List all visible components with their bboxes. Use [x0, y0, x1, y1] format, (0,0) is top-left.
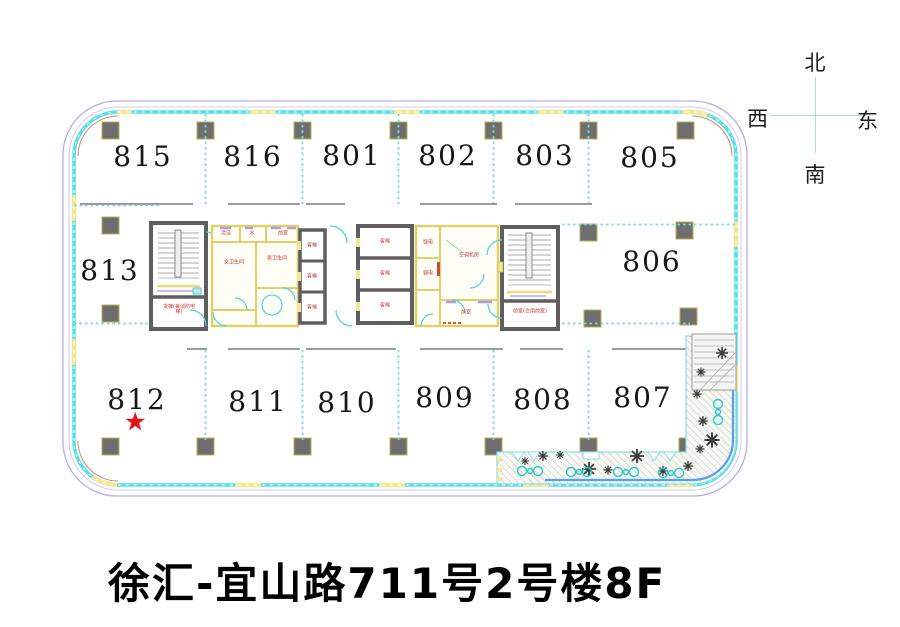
- star-marker: ★: [124, 409, 146, 434]
- label-passenger-elevator: 客梯: [380, 272, 390, 277]
- terrace-corner-stair: [692, 334, 736, 390]
- label-strong-power: 强电: [423, 241, 433, 246]
- room-label-813: 813: [62, 257, 158, 285]
- label-passenger-elevator: 客梯: [307, 244, 317, 249]
- label-men-toilet: 男卫生间: [267, 257, 287, 262]
- lobby-doors: [330, 226, 352, 326]
- compass-west-label: 西: [747, 103, 768, 133]
- floor-plan-canvas: 815 816 801 802 803 805 813 806 812 811 …: [0, 0, 900, 627]
- room-label-816: 816: [205, 143, 301, 171]
- label-passenger-elevator: 客梯: [307, 275, 317, 280]
- core-toilets: [212, 226, 298, 326]
- label-passenger-elevator: 客梯: [380, 304, 390, 309]
- label-fire-elevator: 货梯(兼消防电梯): [160, 305, 198, 315]
- label-ac-room: 空调机房: [459, 254, 479, 259]
- room-label-807: 807: [595, 384, 691, 412]
- label-lobby: 前室: [278, 232, 288, 237]
- room-label-806: 806: [604, 248, 700, 276]
- compass-north-label: 北: [745, 47, 885, 77]
- room-label-802: 802: [400, 142, 496, 170]
- compass-east-label: 东: [857, 105, 878, 135]
- compass: 北 西 东 南: [745, 45, 885, 190]
- label-passenger-elevator: 客梯: [380, 240, 390, 245]
- label-lobby: 前室: [461, 311, 471, 316]
- label-weak-power: 弱电: [423, 272, 433, 277]
- room-label-803: 803: [497, 142, 593, 170]
- label-women-toilet: 女卫生间: [224, 261, 244, 266]
- room-label-808: 808: [495, 386, 591, 414]
- room-label-809: 809: [397, 384, 493, 412]
- label-water: 水: [249, 232, 254, 237]
- label-clean-room: 清洁: [221, 232, 231, 237]
- room-label-801: 801: [304, 142, 400, 170]
- compass-south-label: 南: [745, 159, 885, 189]
- label-fire-lobby: 前室(合用前室): [511, 310, 549, 315]
- plan-title: 徐汇-宜山路711号2号楼8F: [108, 550, 666, 611]
- room-label-815: 815: [95, 143, 191, 171]
- room-label-811: 811: [210, 388, 306, 416]
- room-label-810: 810: [299, 389, 395, 417]
- compass-horizontal-axis: [770, 115, 862, 116]
- room-label-805: 805: [602, 144, 698, 172]
- label-passenger-elevator: 客梯: [307, 306, 317, 311]
